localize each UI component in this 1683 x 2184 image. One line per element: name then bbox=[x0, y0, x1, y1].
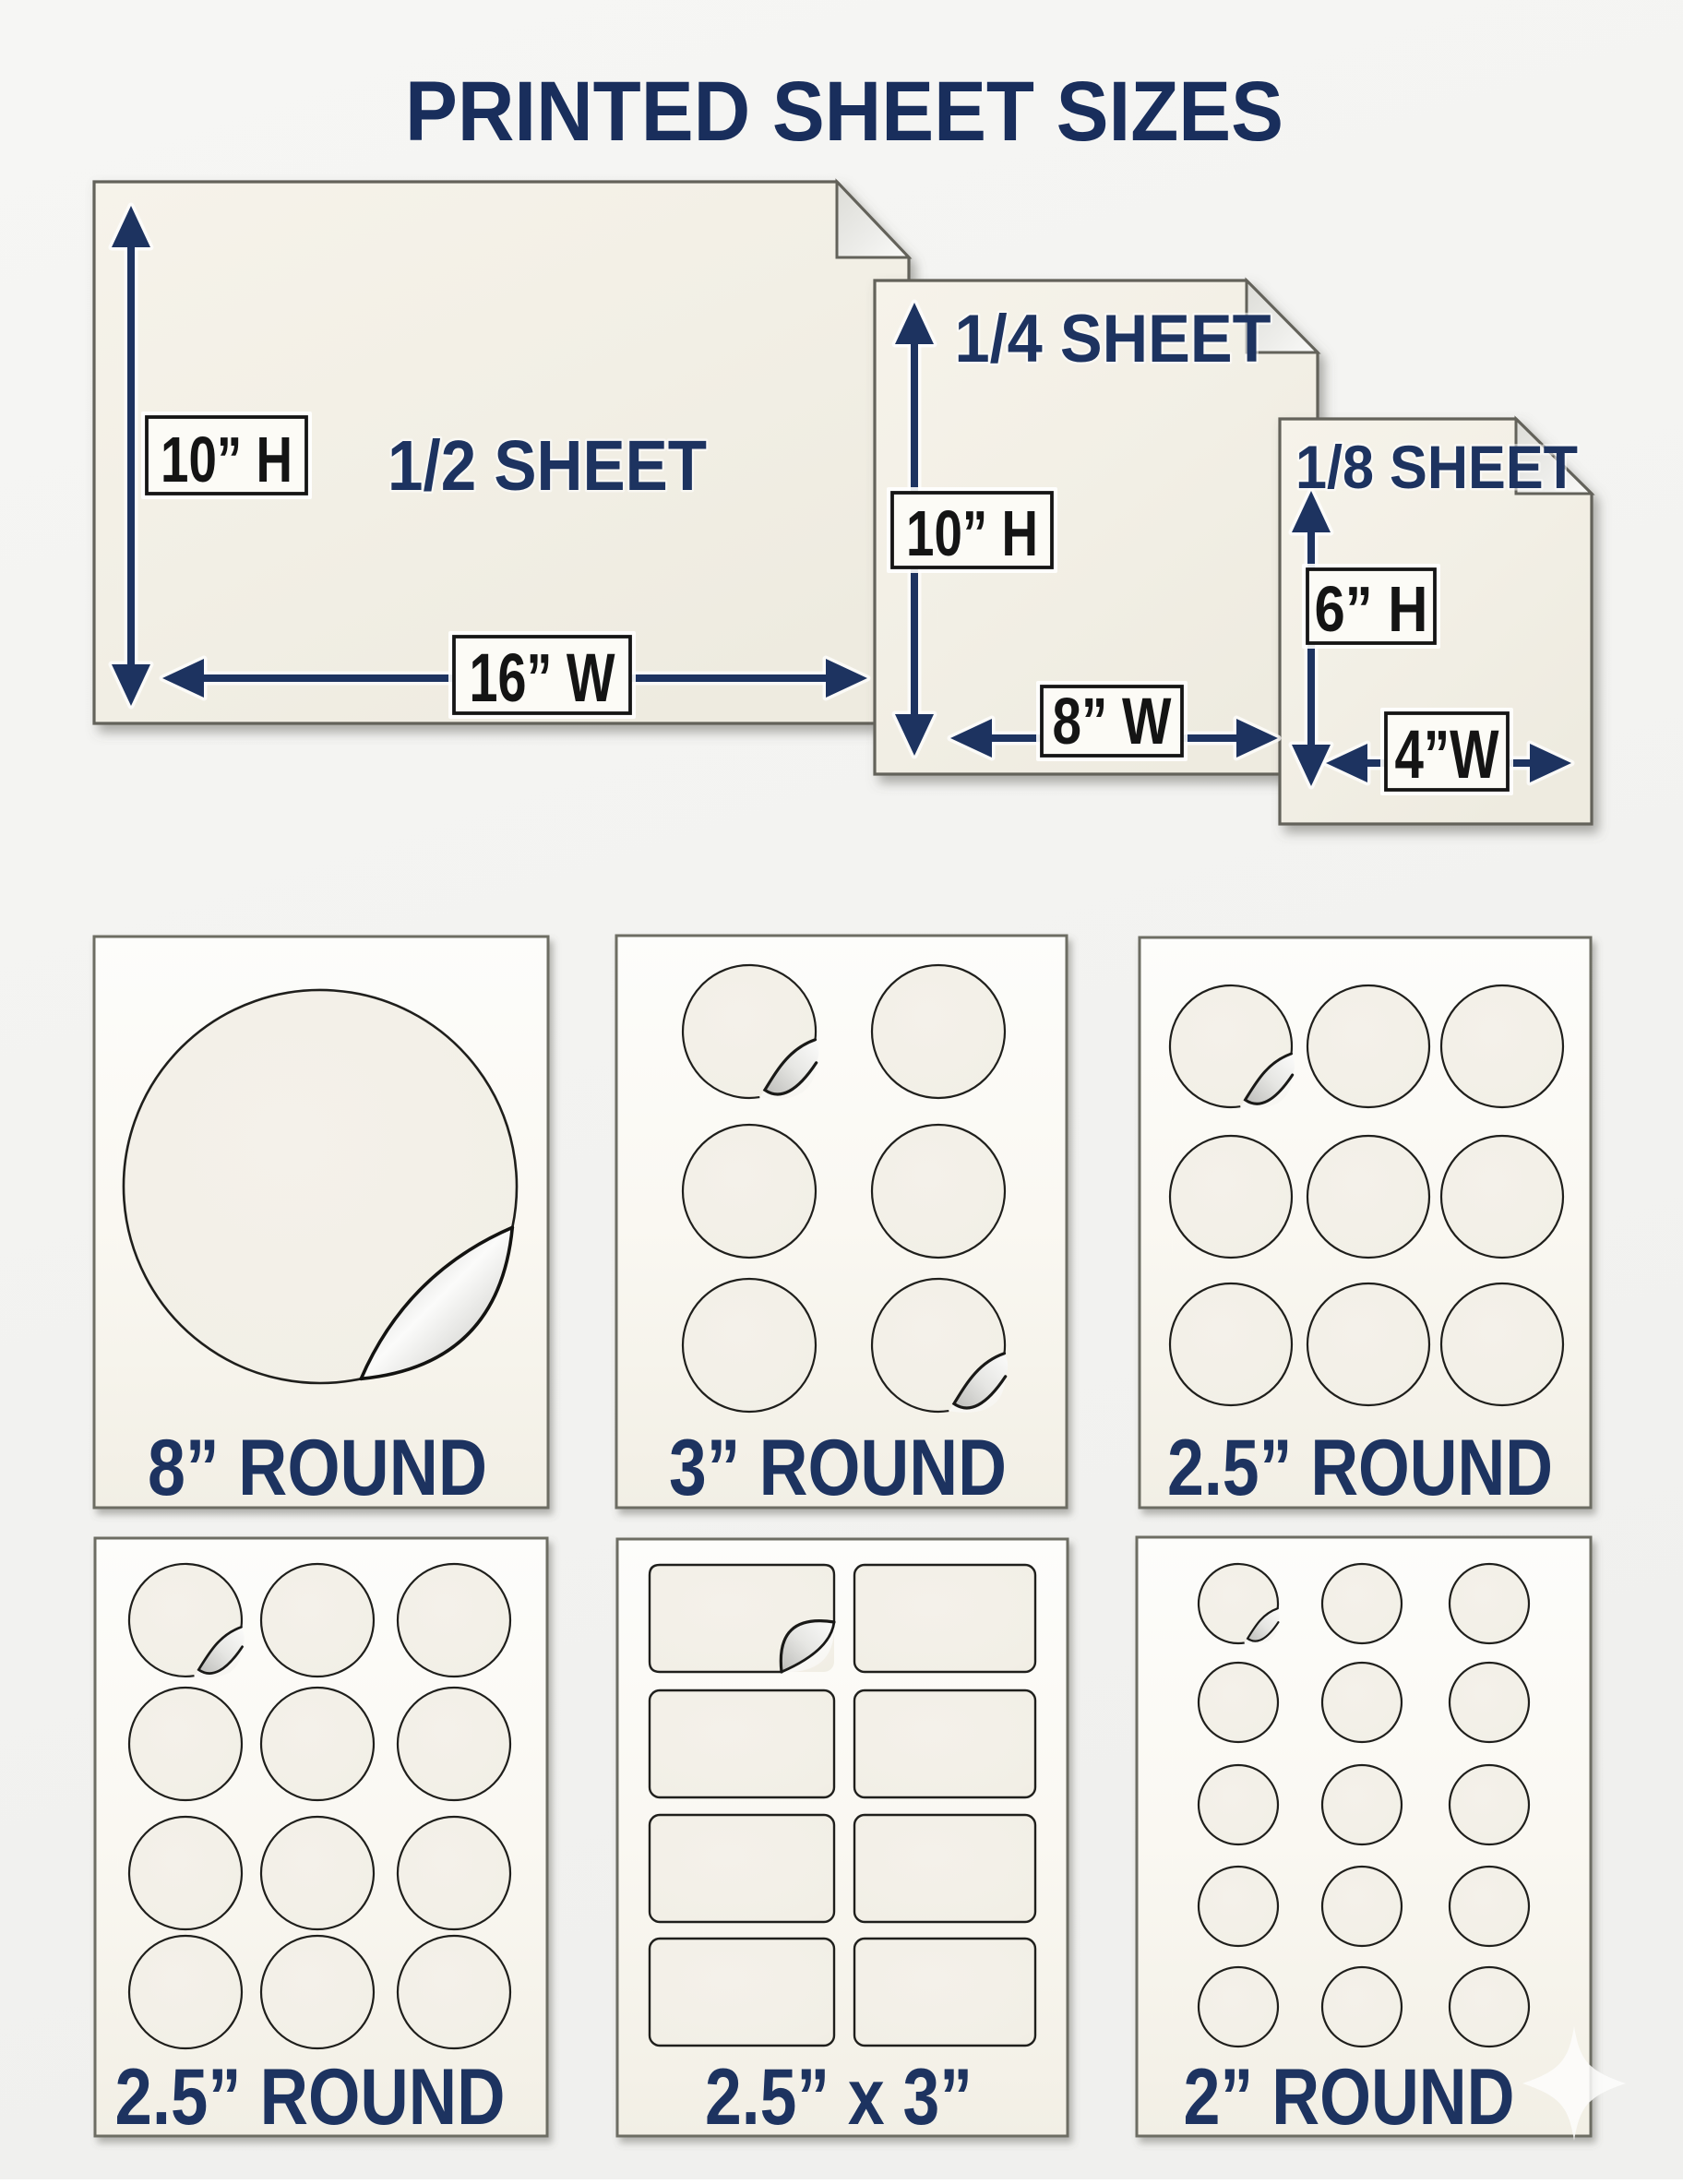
svg-text:2.5” ROUND: 2.5” ROUND bbox=[1167, 1424, 1553, 1512]
svg-text:3” ROUND: 3” ROUND bbox=[669, 1424, 1007, 1512]
svg-text:2.5” x 3”: 2.5” x 3” bbox=[705, 2053, 973, 2142]
svg-text:PRINTED SHEET SIZES: PRINTED SHEET SIZES bbox=[405, 65, 1283, 159]
svg-text:1/8 SHEET: 1/8 SHEET bbox=[1295, 433, 1578, 501]
svg-text:4”W: 4”W bbox=[1395, 716, 1499, 793]
svg-text:2” ROUND: 2” ROUND bbox=[1184, 2053, 1515, 2142]
svg-text:1/2 SHEET: 1/2 SHEET bbox=[388, 426, 707, 506]
svg-text:10” H: 10” H bbox=[906, 497, 1038, 569]
svg-text:10” H: 10” H bbox=[161, 424, 292, 495]
svg-text:2.5” ROUND: 2.5” ROUND bbox=[115, 2053, 506, 2142]
svg-text:16” W: 16” W bbox=[470, 639, 615, 716]
svg-text:8” W: 8” W bbox=[1053, 686, 1172, 758]
svg-text:1/4 SHEET: 1/4 SHEET bbox=[955, 302, 1271, 376]
svg-text:8” ROUND: 8” ROUND bbox=[148, 1424, 487, 1512]
svg-text:6” H: 6” H bbox=[1315, 573, 1428, 645]
